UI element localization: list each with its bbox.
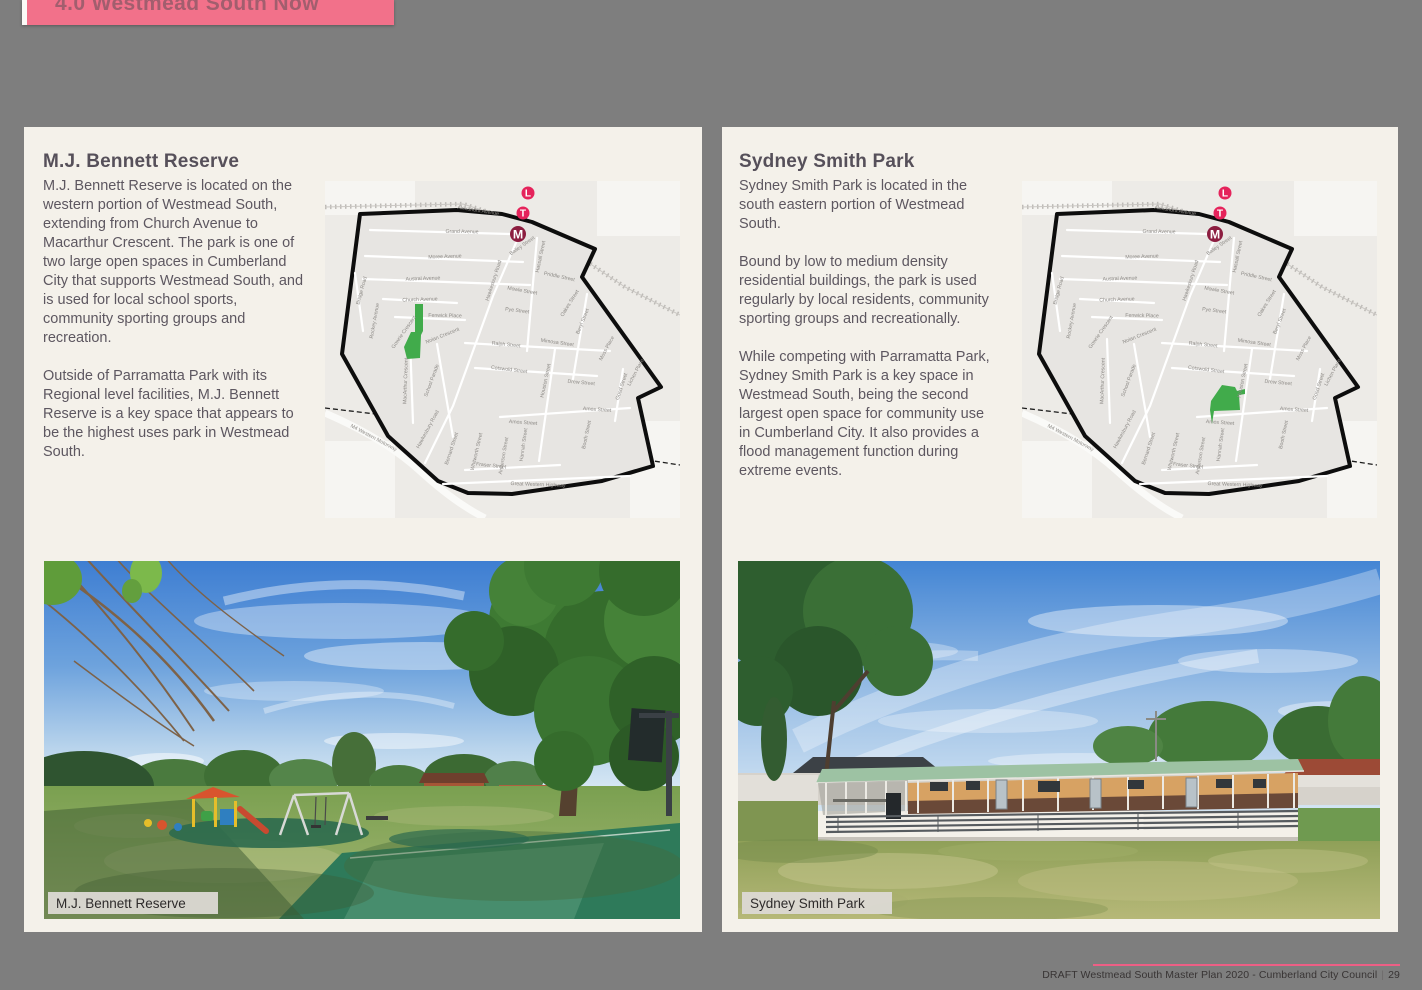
metro-badge: M — [510, 226, 526, 242]
svg-text:L: L — [525, 189, 531, 200]
sydney-photo-art: Sydney Smith Park — [738, 561, 1380, 919]
svg-text:T: T — [520, 209, 527, 220]
bennett-heading: M.J. Bennett Reserve — [43, 151, 239, 173]
svg-text:M: M — [1210, 227, 1220, 241]
section-banner-fill: 4.0 Westmead South Now — [27, 0, 394, 25]
svg-text:Austral Avenue: Austral Avenue — [405, 275, 440, 282]
photo-caption: M.J. Bennett Reserve — [48, 892, 218, 914]
sydney-description: Sydney Smith Park is located in the sout… — [739, 177, 999, 500]
sydney-paragraph-3: While competing with Parramatta Park, Sy… — [739, 348, 999, 481]
footer-separator: | — [1377, 969, 1388, 981]
sydney-photo: Sydney Smith Park — [738, 561, 1380, 919]
page-footer: DRAFT Westmead South Master Plan 2020 - … — [1020, 969, 1400, 981]
svg-text:M: M — [513, 227, 523, 241]
bennett-location-map: Alexandra AvenueGrand AvenueMoree Avenue… — [325, 181, 680, 518]
footer-document-title: DRAFT Westmead South Master Plan 2020 - … — [1042, 969, 1377, 981]
bennett-paragraph-1: M.J. Bennett Reserve is located on the w… — [43, 177, 309, 348]
svg-text:Grand Avenue: Grand Avenue — [1142, 229, 1175, 236]
sydney-location-map: Alexandra AvenueGrand AvenueMoree Avenue… — [1022, 181, 1377, 518]
footer-accent-line — [1093, 964, 1400, 966]
svg-text:Church Avenue: Church Avenue — [402, 296, 438, 303]
train-badge: T — [1214, 207, 1227, 220]
svg-text:Fenwick Place: Fenwick Place — [428, 313, 462, 320]
svg-text:Church Avenue: Church Avenue — [1099, 296, 1135, 303]
right-grass-strip — [1298, 808, 1380, 842]
sydney-smith-panel: Sydney Smith Park Sydney Smith Park is l… — [722, 127, 1398, 932]
train-badge: T — [517, 207, 530, 220]
section-title: 4.0 Westmead South Now — [55, 0, 319, 16]
bennett-reserve-panel: M.J. Bennett Reserve M.J. Bennett Reserv… — [24, 127, 702, 932]
svg-text:Fenwick Place: Fenwick Place — [1125, 313, 1159, 320]
light-rail-badge: L — [522, 187, 535, 200]
bennett-photo: M.J. Bennett Reserve — [44, 561, 680, 919]
photo-caption: Sydney Smith Park — [742, 892, 892, 914]
study-area-map: Alexandra AvenueGrand AvenueMoree Avenue… — [1022, 181, 1377, 518]
sydney-paragraph-1: Sydney Smith Park is located in the sout… — [739, 177, 999, 234]
svg-text:Sydney Smith Park: Sydney Smith Park — [750, 896, 865, 911]
svg-text:Moree Avenue: Moree Avenue — [1125, 253, 1159, 260]
svg-text:M.J. Bennett Reserve: M.J. Bennett Reserve — [56, 896, 186, 911]
svg-text:T: T — [1217, 209, 1224, 220]
svg-text:Austral Avenue: Austral Avenue — [1102, 275, 1137, 282]
section-banner: 4.0 Westmead South Now — [22, 0, 394, 25]
sydney-paragraph-2: Bound by low to medium density residenti… — [739, 253, 999, 329]
light-rail-badge: L — [1219, 187, 1232, 200]
svg-text:L: L — [1222, 189, 1228, 200]
bennett-description: M.J. Bennett Reserve is located on the w… — [43, 177, 309, 481]
svg-text:Grand Avenue: Grand Avenue — [445, 229, 478, 236]
study-area-map: Alexandra AvenueGrand AvenueMoree Avenue… — [325, 181, 680, 518]
footer-page-number: 29 — [1388, 969, 1400, 981]
bennett-photo-art: M.J. Bennett Reserve — [44, 561, 680, 919]
bennett-paragraph-2: Outside of Parramatta Park with its Regi… — [43, 367, 309, 462]
metro-badge: M — [1207, 226, 1223, 242]
sydney-heading: Sydney Smith Park — [739, 151, 915, 173]
svg-text:Moree Avenue: Moree Avenue — [428, 253, 462, 260]
